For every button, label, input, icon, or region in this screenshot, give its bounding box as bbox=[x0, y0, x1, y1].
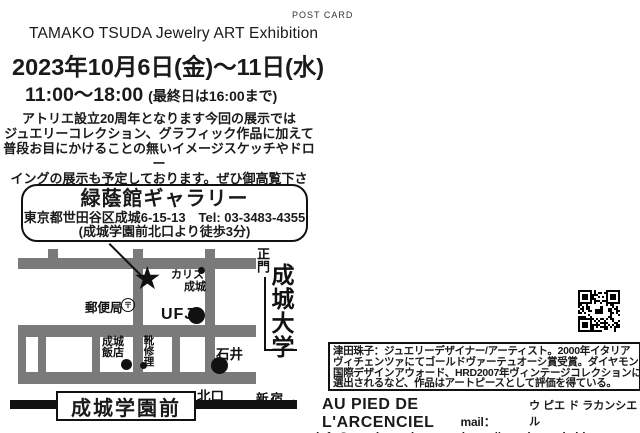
map-road bbox=[172, 337, 180, 372]
postcard-type-label: POST CARD bbox=[292, 10, 353, 20]
exhibition-title: TAMAKO TSUDA Jewelry ART Exhibition bbox=[29, 25, 318, 43]
map-road bbox=[38, 337, 46, 372]
mail-label: mail： bbox=[460, 415, 495, 429]
venue-access: (成城学園前北口より徒歩3分) bbox=[23, 225, 306, 239]
map-road bbox=[133, 249, 143, 258]
postal-mark: 〒 bbox=[124, 300, 132, 311]
map-road bbox=[92, 337, 100, 372]
map-road bbox=[205, 249, 215, 258]
qr-code bbox=[578, 289, 620, 333]
landmark-seijo-hanten: 成城 飯店 bbox=[100, 337, 126, 359]
last-day-note: (最終日は16:00まで) bbox=[148, 86, 277, 106]
university-bracket-line bbox=[264, 277, 266, 351]
intro-line: ジュエリーコレクション、グラフィック作品に加えて bbox=[0, 126, 318, 141]
bio-line: ヴィチェンツァにてゴールドヴァーテュオーシ賞受賞。ダイヤモンドの bbox=[333, 357, 637, 368]
landmark-dot bbox=[211, 357, 228, 374]
intro-line: 普段お目にかけることの無いイメージスケッチやドロー bbox=[0, 141, 318, 171]
venue-address: 東京都世田谷区成城6-15-13 Tel: 03-3483-4355 bbox=[23, 211, 306, 225]
landmark-dot bbox=[188, 307, 205, 324]
open-hours: 11:00～18:00 bbox=[25, 78, 143, 107]
bio-line: 選出されるなど、作品はアートピースとして評価を得ている。 bbox=[333, 378, 637, 389]
landmark-karisu: 成城 bbox=[184, 278, 206, 294]
exhibition-dates: 2023年10月6日(金)～11日(水) bbox=[12, 48, 324, 82]
landmark-dot bbox=[121, 359, 132, 370]
station-name: 成城学園前 bbox=[71, 392, 181, 421]
map-road bbox=[48, 249, 58, 258]
postal-mark-icon: 〒 bbox=[121, 298, 135, 312]
postcard: POST CARD TAMAKO TSUDA Jewelry ART Exhib… bbox=[0, 0, 640, 433]
landmark-text: 飯店 bbox=[100, 348, 126, 359]
station-box: 成城学園前 bbox=[56, 391, 196, 421]
intro-line: アトリエ設立20周年となります今回の展示では bbox=[0, 111, 318, 126]
map-road bbox=[18, 337, 26, 372]
university-label: 成城大学 bbox=[269, 263, 292, 359]
artist-bio-box: 津田珠子：ジュエリーデザイナー/アーティスト。2000年イタリア ヴィチェンツァ… bbox=[328, 342, 640, 391]
landmark-dot bbox=[140, 362, 147, 369]
gallery-star-icon: ★ bbox=[133, 262, 162, 294]
university-bracket-line bbox=[264, 349, 297, 351]
venue-info-box: 緑蔭館ギャラリー 東京都世田谷区成城6-15-13 Tel: 03-3483-4… bbox=[21, 184, 308, 242]
contact-row: mail：info@tamakotsuda.comhttps://tamakot… bbox=[316, 413, 640, 433]
venue-name: 緑蔭館ギャラリー bbox=[23, 188, 306, 211]
landmark-post-office: 郵便局 bbox=[85, 297, 123, 316]
exhibition-hours: 11:00～18:00 (最終日は16:00まで) bbox=[25, 78, 277, 107]
